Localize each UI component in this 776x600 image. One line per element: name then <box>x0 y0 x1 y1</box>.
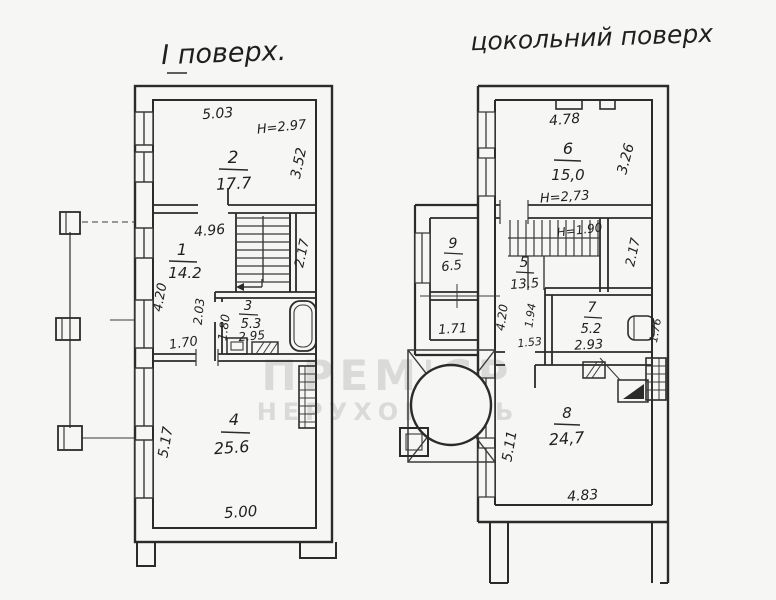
window-icon <box>478 112 495 148</box>
dim-room1-b: 1.70 <box>168 334 199 353</box>
balcony-post-icon <box>58 426 82 450</box>
room-6-number: 6 <box>563 139 573 158</box>
room-2-underline <box>219 169 248 170</box>
dim-room7-width: 2.93 <box>574 337 604 353</box>
dim-stairs-height: Н=1.90 <box>556 220 604 240</box>
dim-stairs-depth: 2.17 <box>623 236 644 268</box>
labels-first-floor: 5.03 Н=2.97 2 17.7 3.52 4.96 1 14.2 4.20… <box>151 105 313 522</box>
room-1-underline <box>169 261 197 262</box>
window-icon <box>135 368 153 426</box>
dim-room3-width: 2.95 <box>238 328 266 344</box>
balcony-rail <box>56 212 135 450</box>
dim-room8-width: 4.83 <box>567 487 599 505</box>
room-8-number: 8 <box>562 404 572 422</box>
window-icon <box>135 112 153 145</box>
stairs-first-floor <box>236 213 290 292</box>
room-5-underline <box>516 272 534 273</box>
plan-basement: цокольний поверх <box>400 19 714 583</box>
room-7-underline <box>584 317 602 318</box>
dim-room4-side: 5.17 <box>155 425 176 459</box>
window-icon <box>135 152 153 182</box>
room-8-area: 24,7 <box>548 428 586 449</box>
dim-room1-a: 2.03 <box>191 298 208 326</box>
room-4-area: 25.6 <box>213 437 250 458</box>
room-2-area: 17.7 <box>215 173 252 194</box>
room-9-number: 9 <box>449 236 458 252</box>
stairs-direction-arrow-icon <box>236 279 262 291</box>
dim-room4-width: 5.00 <box>223 502 258 522</box>
room-5-area: 13.5 <box>510 276 540 293</box>
dim-room5-a: 1.94 <box>522 302 538 328</box>
room-1-area: 14.2 <box>168 264 201 282</box>
room-2-number: 2 <box>228 148 239 168</box>
dim-room2-width: 5.03 <box>202 105 234 123</box>
room-5-number: 5 <box>520 255 529 271</box>
dim-room5-side: 4.20 <box>493 303 511 332</box>
bathtub-icon <box>290 301 316 351</box>
dim-room5-b: 1.53 <box>517 335 543 350</box>
dim-room8-side: 5.11 <box>499 430 520 463</box>
room-4-underline <box>221 432 250 433</box>
room-3-underline <box>239 314 258 315</box>
dim-room6-ceiling: Н=2,73 <box>539 188 590 206</box>
window-icon <box>478 448 495 497</box>
dim-room6-depth: 3.26 <box>614 142 638 176</box>
room-4-number: 4 <box>229 410 239 429</box>
dim-room7-side: 1.76 <box>647 317 664 343</box>
room-6-underline <box>554 160 581 161</box>
plan-first-floor: І поверх. <box>56 36 336 566</box>
floor-plan-scan: ПРЕМ'ЄР НЕРУХОМІСТЬ І поверх. <box>0 0 776 600</box>
balcony-post-icon <box>60 212 80 234</box>
title-basement: цокольний поверх <box>470 19 714 56</box>
window-symbols-left-wall <box>135 112 153 498</box>
dim-room6-width: 4.78 <box>548 111 581 130</box>
room-6-area: 15,0 <box>551 166 584 184</box>
window-icon <box>135 440 153 498</box>
room-3-number: 3 <box>244 299 252 314</box>
dim-room9: 1.71 <box>438 321 468 338</box>
dim-room1-width: 4.96 <box>193 222 226 241</box>
dim-room2-ceiling: Н=2.97 <box>256 117 308 137</box>
room-7-area: 5.2 <box>581 322 602 337</box>
room-9-underline <box>444 253 463 254</box>
room-9-area: 6.5 <box>441 258 463 275</box>
room-1-number: 1 <box>177 240 187 259</box>
dim-room2-depth: 3.52 <box>288 146 310 180</box>
window-icon <box>135 228 153 258</box>
room-7-number: 7 <box>588 300 597 316</box>
circle-well-icon <box>411 365 491 445</box>
floor-plan-drawing: ПРЕМ'ЄР НЕРУХОМІСТЬ І поверх. <box>0 0 776 600</box>
room-8-underline <box>554 424 580 425</box>
labels-basement: 4.78 6 15,0 Н=2,73 3.26 Н=1.90 2.17 9 6.… <box>438 111 664 505</box>
window-icon <box>415 233 430 283</box>
window-symbols-left-wall <box>478 112 495 497</box>
title-first-floor: І поверх. <box>161 36 287 71</box>
window-icon <box>478 158 495 196</box>
balcony-post-icon <box>56 318 80 340</box>
